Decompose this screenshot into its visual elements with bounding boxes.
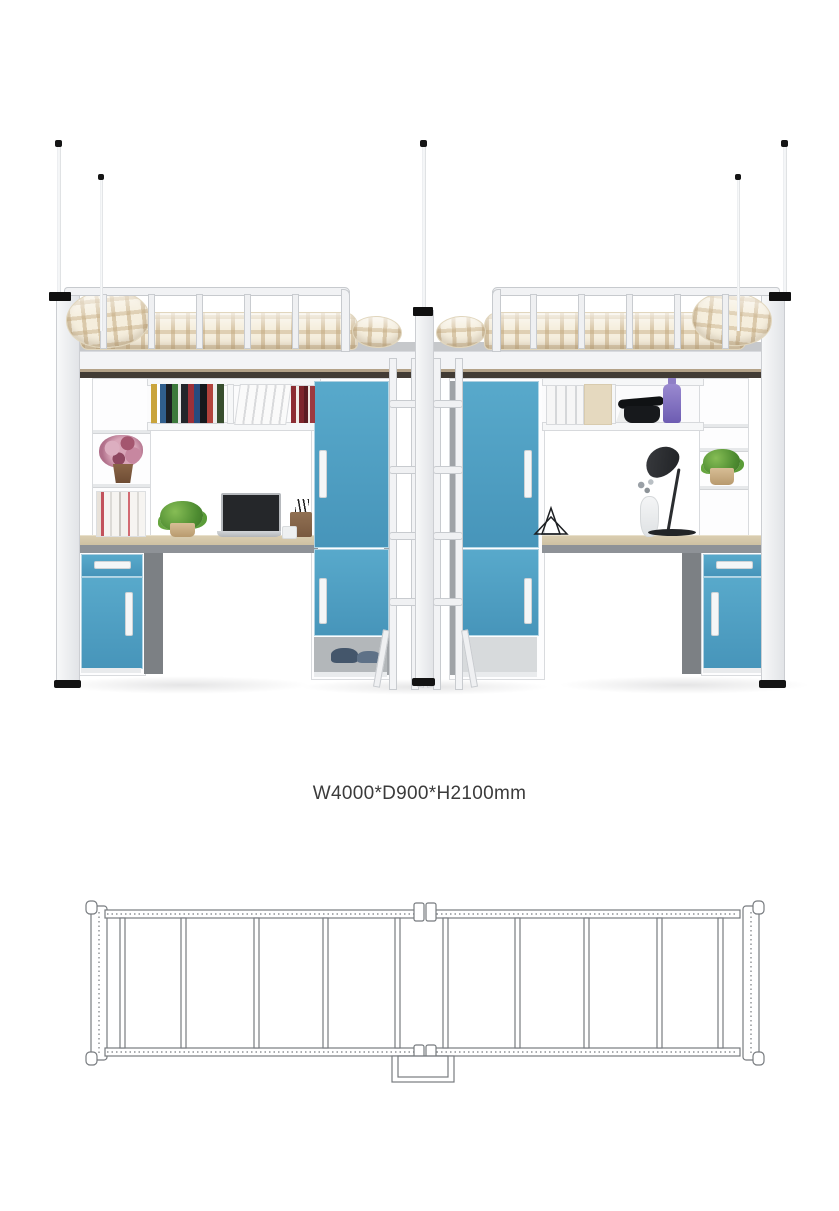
ladder-rung	[433, 466, 463, 474]
pole-bracket	[769, 292, 791, 301]
post-foot	[54, 680, 81, 688]
pole-tip	[55, 140, 62, 147]
left-pedestal-plinth	[81, 668, 141, 673]
ladder-rung	[433, 532, 463, 540]
guardrail-baluster	[722, 294, 729, 349]
laptop-base	[217, 531, 281, 537]
guardrail-baluster	[292, 294, 299, 349]
net-pole-center	[422, 144, 426, 310]
white-binders	[546, 385, 584, 425]
pole-tip	[420, 140, 427, 147]
shelf-divider	[700, 486, 748, 490]
plan-view-diagram	[85, 898, 765, 1098]
post-foot	[759, 680, 786, 688]
guardrail-baluster	[674, 294, 681, 349]
guardrail-baluster	[530, 294, 537, 349]
lamp-base	[648, 529, 696, 536]
sneaker	[331, 648, 358, 663]
guardrail-baluster	[626, 294, 633, 349]
right-pedestal-side-panel	[682, 553, 701, 674]
desk-plant-pot	[170, 523, 195, 537]
shelf-divider	[93, 430, 150, 434]
magazines	[96, 491, 146, 537]
ladder-rung	[433, 598, 463, 606]
right-door-handle	[711, 592, 719, 636]
left-pedestal-door	[81, 577, 143, 669]
net-pole-far-right	[783, 145, 787, 295]
pole-tip	[735, 174, 741, 180]
left-pedestal-side-panel	[144, 553, 163, 674]
plan-right-bed-frame	[430, 901, 764, 1065]
right-desk-edge	[542, 545, 770, 553]
net-pole-mid-left	[100, 178, 103, 331]
right-wardrobe-handle-top	[524, 450, 532, 498]
right-pedestal-plinth	[703, 668, 763, 673]
lamp-arm	[666, 468, 680, 532]
books-white	[234, 384, 292, 425]
shelf-divider	[700, 424, 748, 428]
left-guardrail-end	[341, 289, 350, 352]
bed-post-right	[761, 294, 785, 688]
small-white-cup	[282, 526, 297, 539]
plan-left-bed-frame	[86, 901, 420, 1065]
pole-tip	[98, 174, 104, 180]
pole-bracket	[413, 307, 433, 316]
laptop-screen	[221, 493, 281, 536]
left-wardrobe-handle-top	[319, 450, 327, 498]
net-pole-mid-right	[737, 178, 740, 331]
books-colorful	[151, 384, 224, 424]
pole-bracket	[49, 292, 71, 301]
purple-bottle	[663, 384, 681, 423]
right-drawer-handle	[716, 561, 753, 569]
shelf-divider	[93, 484, 150, 488]
left-wardrobe-handle-bottom	[319, 578, 327, 624]
bed-post-center	[415, 310, 434, 686]
vase-sprig	[634, 478, 658, 498]
guardrail-baluster	[196, 294, 203, 349]
ladder-rung	[433, 400, 463, 408]
left-door-handle	[125, 592, 133, 636]
right-guardrail-end	[492, 289, 501, 352]
dimensions-caption: W4000*D900*H2100mm	[0, 783, 839, 805]
net-pole-far-left	[57, 145, 61, 295]
product-sheet: W4000*D900*H2100mm	[0, 0, 839, 1211]
guardrail-baluster	[578, 294, 585, 349]
guardrail-baluster	[244, 294, 251, 349]
left-drawer-handle	[94, 561, 131, 569]
guardrail-baluster	[148, 294, 155, 349]
telephone-body	[624, 406, 660, 423]
bed-post-left	[56, 294, 80, 688]
column-plant-pot	[710, 468, 734, 485]
books-red	[291, 386, 315, 423]
floor-shadow-left	[58, 676, 310, 694]
beige-bookend	[584, 384, 612, 425]
wire-pyramid-decor	[532, 505, 570, 536]
plan-ladder	[392, 1056, 454, 1082]
right-wardrobe-handle-bottom	[524, 578, 532, 624]
left-bookshelf-divider	[227, 384, 234, 424]
pole-tip	[781, 140, 788, 147]
post-foot	[412, 678, 435, 686]
left-desk-edge	[74, 545, 318, 553]
plan-center-junction	[414, 903, 436, 1063]
